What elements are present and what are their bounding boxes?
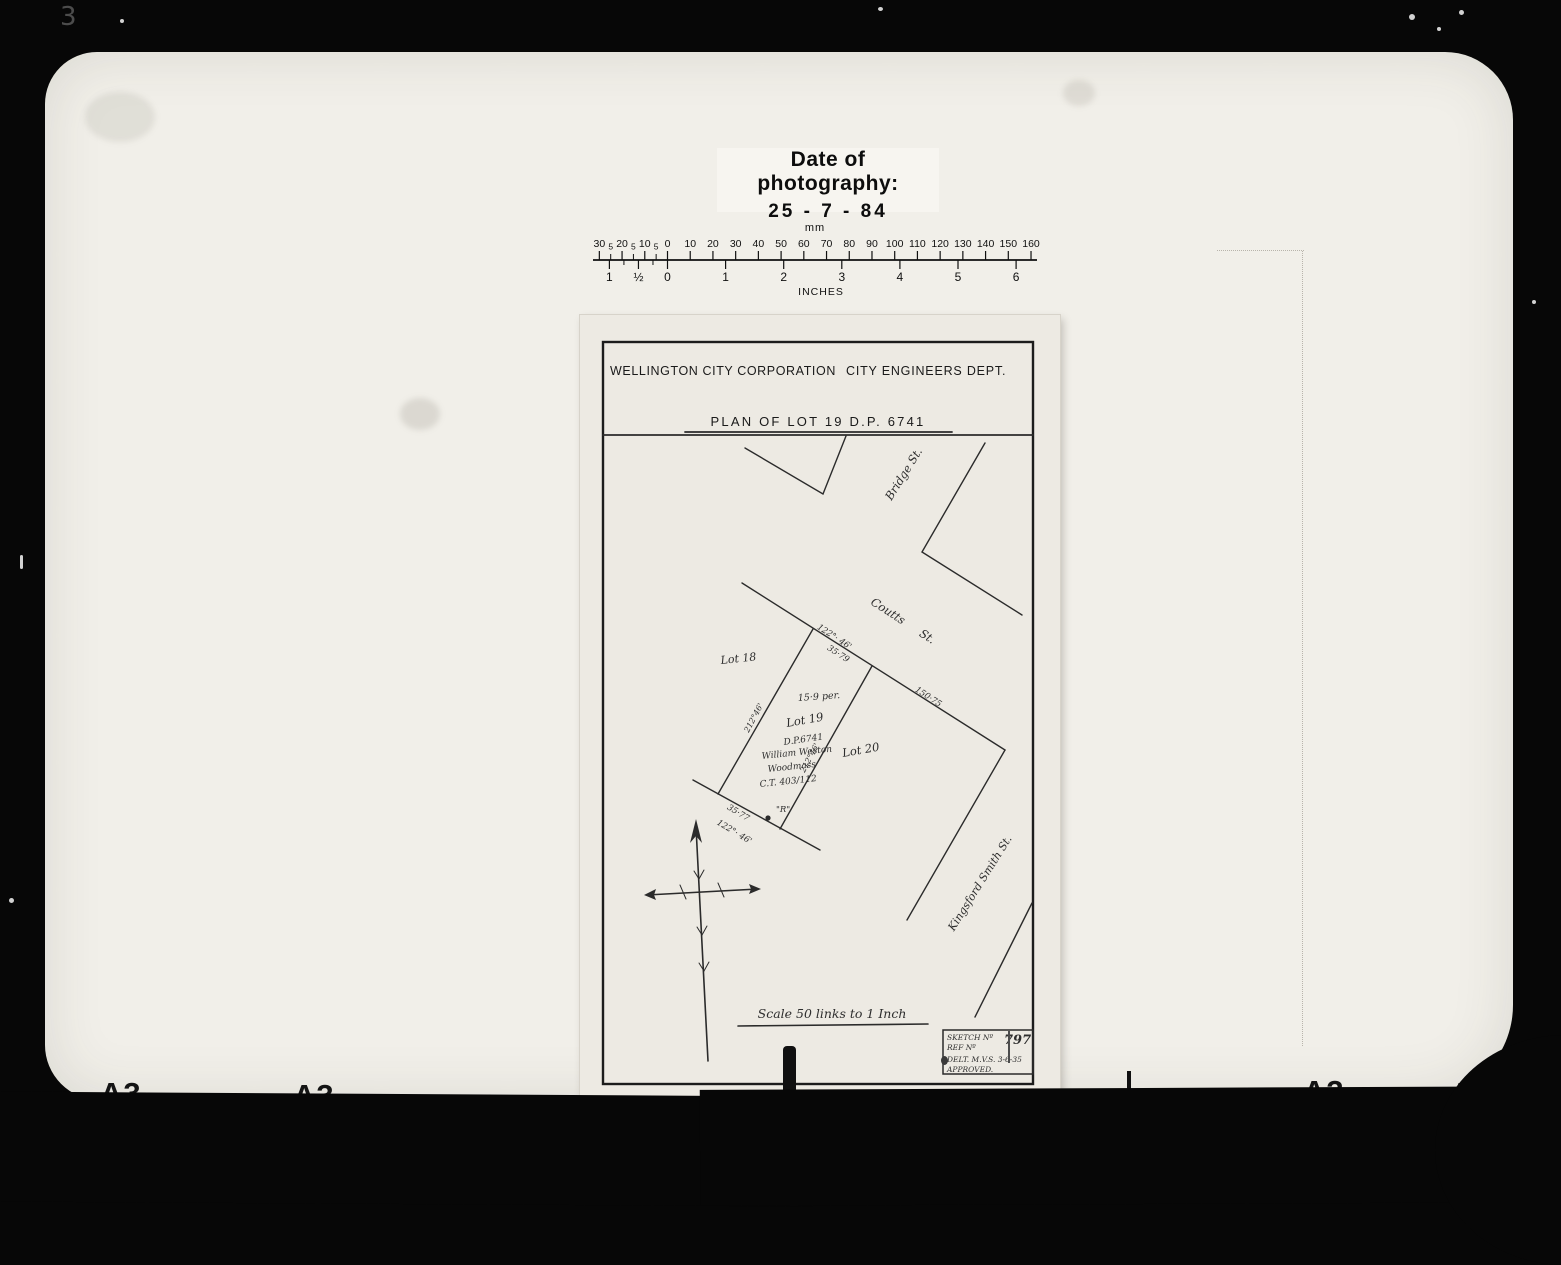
org-name-right: CITY ENGINEERS DEPT. (846, 364, 1006, 378)
svg-text:0: 0 (665, 238, 671, 250)
svg-text:6: 6 (1013, 270, 1020, 284)
adjacent-sheet-edge-horizontal (1217, 250, 1304, 251)
plan-sheet: WELLINGTON CITY CORPORATION CITY ENGINEE… (580, 315, 1060, 1107)
svg-text:3: 3 (838, 270, 845, 284)
sheet-edge-tick (1008, 1031, 1010, 1063)
svg-text:20: 20 (707, 238, 719, 250)
scale-note-underline (738, 1024, 928, 1026)
ruler: 0102030405060708090100110120130140150160… (585, 217, 1055, 309)
svg-text:5: 5 (955, 270, 962, 284)
smudge (1063, 80, 1095, 106)
ct-reference: C.T. 403/112 (759, 774, 817, 790)
film-scratch: 3 (60, 2, 77, 32)
smudge (400, 398, 440, 430)
street-label-bridge: Bridge St. (882, 445, 926, 503)
dust-speck (1409, 14, 1415, 20)
svg-text:90: 90 (866, 238, 878, 250)
svg-text:1: 1 (606, 270, 613, 284)
dust-speck (20, 555, 23, 569)
dust-speck (120, 19, 124, 23)
ref-no-label: REF Nº (946, 1043, 976, 1052)
street-label-kingsford: Kingsford Smith St. (945, 833, 1015, 934)
svg-text:10: 10 (684, 238, 696, 250)
sketch-no-label: SKETCH Nº (947, 1033, 993, 1042)
org-name-left: WELLINGTON CITY CORPORATION (610, 364, 836, 378)
smudge (85, 92, 155, 142)
registration-bar-lower (783, 1090, 796, 1175)
lot20-se-boundary (907, 750, 1005, 920)
svg-text:130: 130 (954, 238, 972, 250)
delt-line: DELT. M.V.S. 3-6-35 (946, 1055, 1022, 1064)
svg-text:30: 30 (593, 238, 605, 250)
lot18-label: Lot 18 (719, 650, 757, 667)
svg-text:½: ½ (633, 270, 643, 284)
svg-text:2: 2 (780, 270, 787, 284)
sketch-box: SKETCH Nº 797 REF Nº DELT. M.V.S. 3-6-35… (943, 1030, 1033, 1074)
svg-text:5: 5 (654, 242, 659, 252)
compass-rose (644, 819, 761, 1061)
svg-text:110: 110 (909, 238, 926, 250)
coutts-length: 150·75 (913, 685, 943, 710)
street-line-bridge-corner (922, 443, 1022, 615)
svg-text:70: 70 (821, 238, 833, 250)
kingsford-se-line (975, 903, 1032, 1017)
plan-title: PLAN OF LOT 19 D.P. 6741 (711, 414, 926, 429)
svg-text:40: 40 (753, 238, 765, 250)
date-stamp: Date of photography: 25 - 7 - 84 (717, 148, 939, 212)
svg-text:0: 0 (664, 270, 671, 284)
dust-speck (1459, 10, 1464, 15)
svg-text:160: 160 (1022, 238, 1040, 250)
svg-text:mm: mm (805, 222, 825, 234)
lot19-area: 15·9 per. (797, 690, 840, 704)
dust-speck (9, 898, 14, 903)
plan-sheet-drawing: WELLINGTON CITY CORPORATION CITY ENGINEE… (580, 315, 1060, 1107)
owner-line1: William Weston (761, 745, 833, 762)
peg-label: "R" (776, 805, 790, 815)
photo-paper: Date of photography: 25 - 7 - 84 0102030… (45, 52, 1513, 1100)
svg-text:100: 100 (886, 238, 904, 250)
svg-text:80: 80 (843, 238, 855, 250)
scale-note: Scale 50 links to 1 Inch (758, 1006, 907, 1021)
svg-text:60: 60 (798, 238, 810, 250)
lot20-label: Lot 20 (840, 740, 880, 760)
svg-text:30: 30 (730, 238, 742, 250)
svg-text:50: 50 (775, 238, 787, 250)
dust-speck (1532, 300, 1536, 304)
street-line-top-corner (745, 436, 846, 494)
svg-text:150: 150 (1000, 238, 1018, 250)
svg-text:140: 140 (977, 238, 995, 250)
ink-blob (941, 1056, 948, 1065)
microfilm-frame: { "photo": { "date_label": "Date of phot… (0, 0, 1561, 1175)
dust-speck (1437, 27, 1441, 31)
date-label: Date of photography: (717, 148, 939, 196)
film-border-bottom-right (700, 1086, 1561, 1206)
svg-text:5: 5 (608, 242, 613, 252)
adjacent-sheet-edge-vertical (1302, 251, 1303, 1046)
svg-text:5: 5 (631, 242, 636, 252)
svg-text:120: 120 (931, 238, 949, 250)
rear-length: 35·77 (725, 803, 752, 824)
survey-peg-dot (765, 815, 770, 820)
svg-text:1: 1 (722, 270, 729, 284)
svg-text:INCHES: INCHES (798, 286, 844, 298)
svg-text:10: 10 (639, 238, 651, 250)
lot19-label: Lot 19 (784, 710, 824, 730)
svg-text:20: 20 (616, 238, 628, 250)
street-label-coutts: Coutts St. (868, 595, 938, 647)
film-border-bottom-left (0, 1091, 818, 1206)
rear-bearing: 122°· 46' (715, 818, 754, 847)
svg-text:4: 4 (897, 270, 904, 284)
dust-speck (878, 7, 883, 11)
approved-line: APPROVED. (946, 1065, 993, 1074)
